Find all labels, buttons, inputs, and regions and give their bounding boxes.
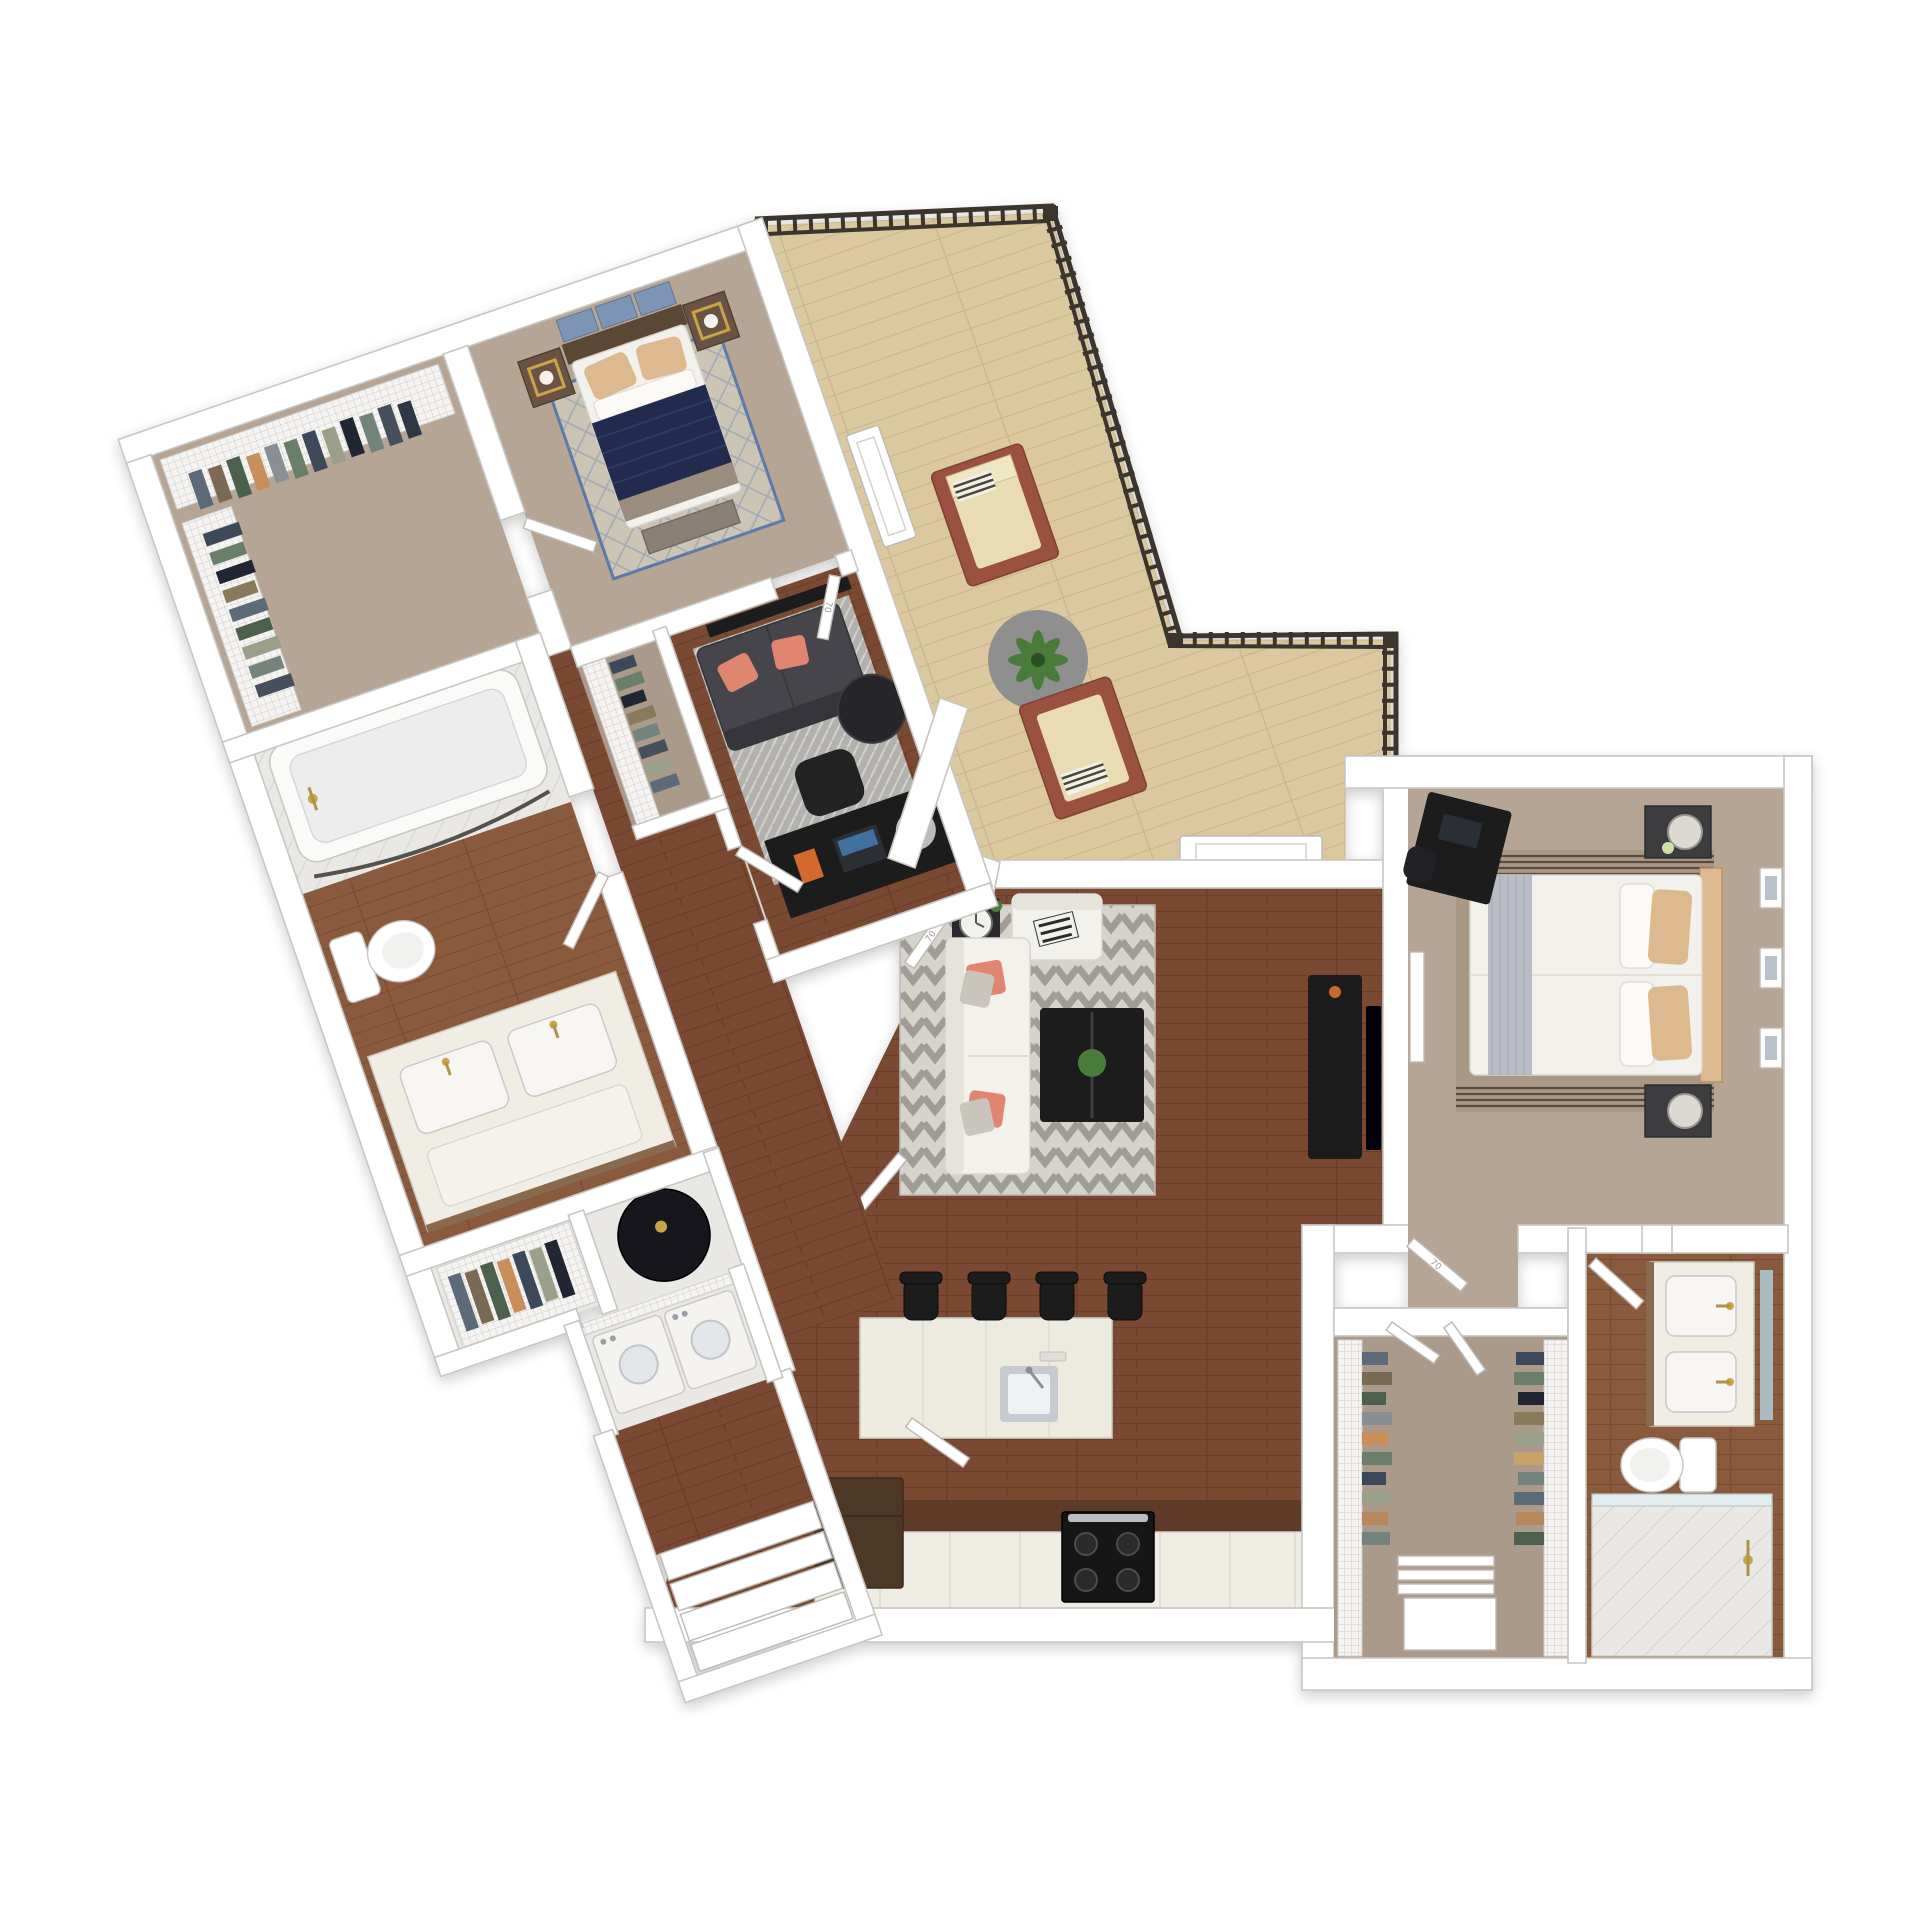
master-vanity	[1646, 1262, 1773, 1426]
apartment-plan: 70	[118, 206, 1812, 1743]
kitchen-island	[860, 1318, 1112, 1438]
master-bed-group	[1456, 850, 1722, 1112]
table-plant	[1078, 1049, 1106, 1077]
master-right-wall	[1784, 756, 1812, 1690]
bar-stool	[1036, 1272, 1078, 1320]
range-cooktop	[1062, 1512, 1154, 1602]
master-top-wall	[1345, 756, 1812, 788]
bar-stool	[900, 1272, 942, 1320]
living-balcony-wall	[988, 860, 1408, 888]
bed-runner	[1488, 875, 1532, 1075]
master-hall-floor	[1408, 1228, 1518, 1313]
living-tv	[1366, 1006, 1381, 1150]
living-master-wall	[1383, 758, 1411, 1230]
master-toilet	[1621, 1438, 1716, 1492]
master-headboard	[1700, 868, 1722, 1082]
vanity-mirror	[1760, 1270, 1773, 1420]
floor-plan-canvas: 70	[0, 0, 1920, 1920]
master-wall-tv-frame	[1410, 952, 1424, 1062]
floor-plan-render: 70	[0, 0, 1920, 1920]
storage-bin	[1404, 1598, 1496, 1650]
closet-wire-shelf-left	[1338, 1340, 1362, 1656]
master-nightstand-1	[1645, 806, 1711, 858]
kitchen-closet-wall	[1302, 1225, 1334, 1665]
bath-door-jamb	[1642, 1225, 1672, 1253]
bar-stool	[968, 1272, 1010, 1320]
shoe-rack	[1398, 1556, 1496, 1650]
bar-stool	[1104, 1272, 1146, 1320]
shower-glass	[1592, 1494, 1772, 1506]
master-nightstand-2	[1645, 1085, 1711, 1137]
master-bottom-wall	[1302, 1658, 1812, 1690]
balcony-potted-plant	[1008, 630, 1068, 690]
closet-wire-shelf-right	[1544, 1340, 1568, 1656]
walk-in-shower	[1592, 1494, 1772, 1656]
closet-bath-wall	[1568, 1228, 1586, 1663]
media-console	[1308, 975, 1362, 1159]
coffee-table	[1040, 1008, 1144, 1122]
console-decor	[1329, 986, 1341, 998]
master-wall-frames	[1760, 868, 1782, 1068]
